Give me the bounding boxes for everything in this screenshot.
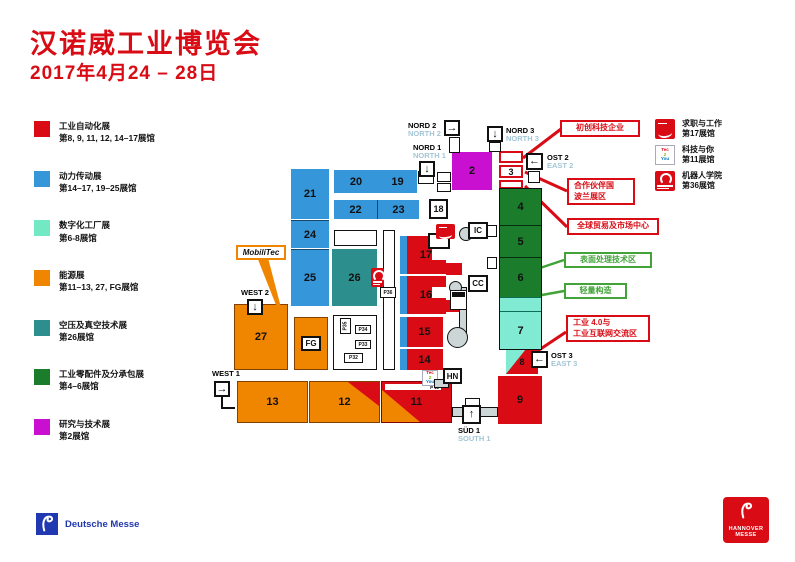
fg-label-box: FG [301, 336, 321, 351]
parking-p34: P34 [355, 325, 371, 334]
legend-halls: 第14–17, 19–25展馆 [59, 182, 137, 194]
entrance-nord1-label: NORD 1NORTH 1 [413, 144, 446, 161]
ic-label-box: IC [468, 222, 488, 239]
legend-swatch [34, 369, 50, 385]
legend-halls: 第2展馆 [59, 430, 110, 442]
entrance-sued1-label: SÜD 1SOUTH 1 [458, 427, 491, 444]
feature-halls: 第36展馆 [682, 181, 722, 191]
legend-swatch [34, 419, 50, 435]
hall-17-blue-strip [400, 236, 407, 274]
legend-item-digital-factory: 数字化工厂展第6-8展馆 [34, 219, 229, 244]
hall-2-skywalk-b [437, 183, 451, 192]
tec2you-icon: Tec2You [655, 145, 675, 165]
hall-22: 22 [334, 200, 377, 219]
callout-global-business: 全球贸易及市场中心 [567, 218, 659, 235]
legend-label: 能源展 [59, 269, 138, 281]
legend-swatch [34, 320, 50, 336]
legend-swatch [34, 270, 50, 286]
callout-partner-country-poland: 合作伙伴国 波兰展区 [567, 178, 635, 205]
hall-17-notch [432, 249, 446, 260]
feature-halls: 第17展馆 [682, 129, 722, 139]
legend-label: 数字化工厂展 [59, 219, 110, 231]
legend-item-industrial-automation: 工业自动化展第8, 9, 11, 12, 14–17展馆 [34, 120, 229, 145]
legend-halls: 第4–6展馆 [59, 380, 144, 392]
legend-halls: 第11–13, 27, FG展馆 [59, 281, 138, 293]
job-and-career-icon [655, 119, 675, 139]
entrance-nord3-corridor [489, 142, 501, 152]
callout-startups: 初创科技企业 [560, 120, 640, 137]
feature-halls: 第11展馆 [682, 155, 714, 165]
feature-label: 机器人学院 [682, 171, 722, 181]
hall-17-annex [446, 263, 462, 275]
feature-label: 求职与工作 [682, 119, 722, 129]
entrance-sued1-arrow-icon: ↑ [462, 405, 481, 424]
legend-label: 研究与技术展 [59, 418, 110, 430]
central-corridor [383, 230, 395, 370]
legend-swatch [34, 171, 50, 187]
hall-16-notch [432, 287, 446, 298]
entrance-ost2-arrow-icon: ← [526, 153, 543, 170]
entrance-nord1-arrow-icon: ↓ [419, 161, 435, 177]
parking-p32: P32 [344, 353, 363, 363]
hall-column-4-to-7: 4 5 6 7 [499, 188, 542, 350]
legend-label: 空压及真空技术展 [59, 319, 127, 331]
legend-item-industrial-supply: 工业零配件及分承包展第4–6展馆 [34, 368, 229, 393]
entrance-ost2-label: OST 2EAST 2 [547, 154, 573, 171]
hall-21: 21 [291, 169, 329, 219]
skywalk-cc-hall5 [487, 257, 497, 269]
hall-3-north-section [499, 151, 523, 163]
parking-p35: P35 [340, 318, 351, 334]
hall-24: 24 [291, 220, 329, 248]
press-center-box [450, 290, 467, 310]
hall-16-blue-strip [400, 276, 407, 314]
hermes-head-icon [735, 500, 757, 522]
legend-item-comvac: 空压及真空技术展第26展馆 [34, 319, 229, 344]
hall-4: 4 [500, 189, 541, 225]
hall-2: 2 [452, 152, 492, 190]
entrance-nord2-label: NORD 2NORTH 2 [408, 122, 441, 139]
hall-19: 19 [378, 170, 417, 193]
entrance-ost3-arrow-icon: ← [531, 351, 548, 368]
legend-swatch [34, 220, 50, 236]
callout-surface-technology: 表面处理技术区 [564, 252, 652, 268]
hall-6: 6 [500, 257, 541, 297]
hall-7: 7 [500, 311, 541, 349]
hall-15-blue-strip [400, 317, 407, 347]
legend-item-motion-drive: 动力传动展第14–17, 19–25展馆 [34, 170, 229, 195]
entrance-west2-label: WEST 2 [241, 289, 269, 297]
hall-15: 15 [400, 317, 443, 347]
hall-18: 18 [429, 199, 448, 219]
service-building [334, 230, 377, 246]
entrance-ost2-corridor [528, 171, 540, 183]
callout-industrie-4-0: 工业 4.0与 工业互联网交流区 [566, 315, 650, 342]
legend-label: 动力传动展 [59, 170, 137, 182]
fairground-map-page: 汉诺威工业博览会 2017年4月24 – 28日 工业自动化展第8, 9, 11… [0, 0, 795, 562]
feature-label: 科技与你 [682, 145, 714, 155]
parking-p33: P33 [355, 340, 371, 349]
hall-12-red-section [348, 382, 379, 406]
entrance-nord3-arrow-icon: ↓ [487, 126, 503, 142]
legend-halls: 第26展馆 [59, 331, 127, 343]
entrance-ost3-label: OST 3EAST 3 [551, 352, 577, 369]
legend-label: 工业自动化展 [59, 120, 155, 132]
hall-20: 20 [334, 170, 378, 193]
deutsche-messe-logo: Deutsche Messe [36, 513, 139, 535]
feature-job-and-career: 求职与工作第17展馆 [655, 119, 775, 139]
hannover-messe-logo: HANNOVERMESSE [723, 497, 769, 543]
hall-13: 13 [237, 381, 308, 423]
callout-lightweight-construction: 轻量构造 [564, 283, 627, 299]
hall-23: 23 [377, 200, 419, 219]
hall-25: 25 [291, 249, 329, 306]
entrance-nord2-arrow-icon: → [444, 120, 460, 136]
entrance-nord2-corridor [449, 137, 460, 153]
legend-swatch [34, 121, 50, 137]
entrance-west1-arrow-icon: → [214, 381, 230, 397]
hall-12: 12 [309, 381, 380, 423]
hermes-tower [447, 327, 468, 348]
hall-3: 3 [499, 165, 523, 178]
legend-halls: 第6-8展馆 [59, 232, 110, 244]
hall-9: 9 [498, 376, 542, 424]
exhibition-legend: 工业自动化展第8, 9, 11, 12, 14–17展馆 动力传动展第14–17… [34, 120, 229, 467]
cc-label-box: CC [468, 275, 488, 292]
legend-item-energy: 能源展第11–13, 27, FG展馆 [34, 269, 229, 294]
legend-halls: 第8, 9, 11, 12, 14–17展馆 [59, 132, 155, 144]
parking-p36: P36 [380, 287, 396, 298]
entrance-west2-arrow-icon: ↓ [247, 299, 263, 315]
entrance-nord3-label: NORD 3NORTH 3 [506, 127, 539, 144]
page-title: 汉诺威工业博览会 [30, 22, 262, 61]
event-dates: 2017年4月24 – 28日 [30, 58, 218, 85]
hall-2-skywalk-a [437, 172, 451, 182]
mobilitec-callout: MobiliTec [236, 245, 286, 260]
hn-label-box: HN [443, 368, 462, 384]
hall-5: 5 [500, 225, 541, 257]
skywalk-ic-hall4 [487, 225, 497, 237]
feature-robotation-academy: 机器人学院第36展馆 [655, 171, 775, 191]
hall-14-blue-strip [400, 349, 407, 370]
job-and-career-map-icon [436, 224, 455, 239]
hermes-head-icon [36, 513, 58, 535]
entrance-west1-label: WEST 1 [212, 370, 240, 378]
legend-label: 工业零配件及分承包展 [59, 368, 144, 380]
robotation-academy-icon [655, 171, 675, 191]
hall-6-aqua-section [500, 297, 541, 311]
robotation-academy-map-icon [371, 268, 384, 287]
hall-14: 14 [400, 349, 443, 370]
feature-legend: 求职与工作第17展馆 Tec2You 科技与你第11展馆 机器人学院第36展馆 [655, 119, 775, 197]
feature-tec2you: Tec2You 科技与你第11展馆 [655, 145, 775, 165]
legend-item-research-technology: 研究与技术展第2展馆 [34, 418, 229, 443]
